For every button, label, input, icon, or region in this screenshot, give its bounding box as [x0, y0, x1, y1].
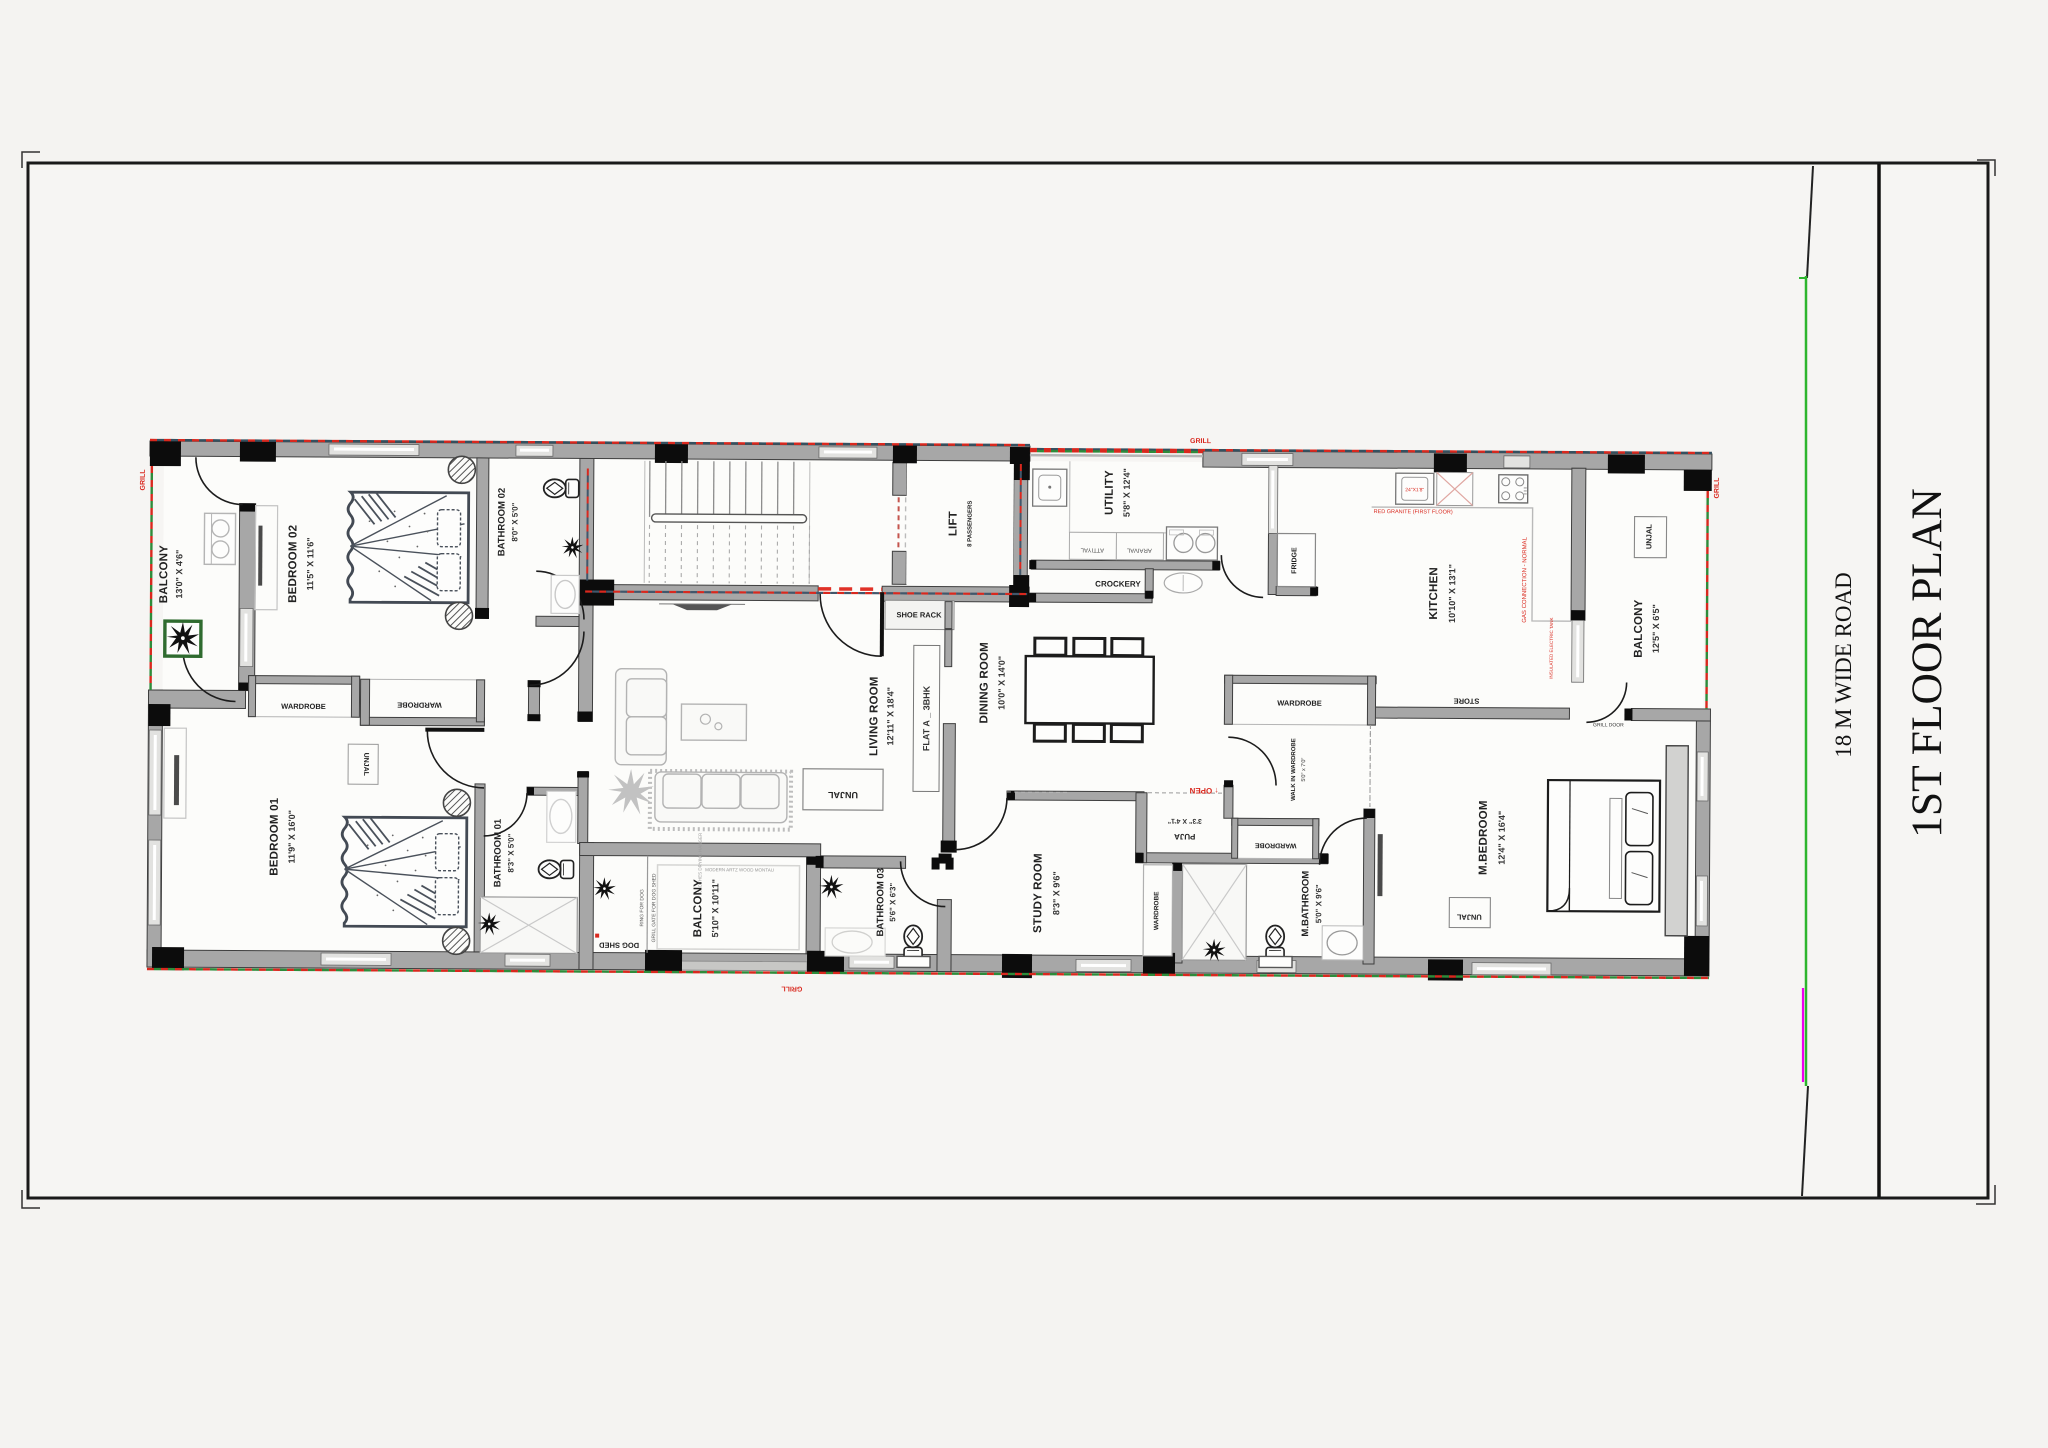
svg-text:8'3" X 5'0": 8'3" X 5'0": [507, 833, 516, 872]
svg-text:8'3" X 9'6": 8'3" X 9'6": [1051, 871, 1061, 915]
svg-text:RED GRANITE (FIRST FLOOR): RED GRANITE (FIRST FLOOR): [1374, 509, 1453, 515]
svg-text:WALK IN WARDROBE: WALK IN WARDROBE: [1291, 738, 1297, 801]
svg-text:8 PASSENGERS: 8 PASSENGERS: [967, 501, 973, 547]
svg-text:BALCONY: BALCONY: [158, 545, 170, 603]
svg-text:12'4" X 16'4": 12'4" X 16'4": [1497, 811, 1507, 865]
svg-text:11'9" X 16'0": 11'9" X 16'0": [287, 810, 297, 863]
svg-text:GRILL GATE FOR DOG SHED: GRILL GATE FOR DOG SHED: [651, 873, 657, 942]
svg-text:M.BEDROOM: M.BEDROOM: [1478, 800, 1490, 875]
svg-text:STORE: STORE: [1454, 697, 1480, 706]
svg-text:UNJAL: UNJAL: [827, 790, 858, 800]
svg-text:BALCONY: BALCONY: [692, 879, 704, 937]
svg-text:ARAIVAL: ARAIVAL: [1126, 547, 1152, 553]
svg-text:24"X1'8": 24"X1'8": [1405, 487, 1424, 493]
svg-text:GRILL DOOR: GRILL DOOR: [1593, 722, 1624, 728]
svg-text:KITCHEN: KITCHEN: [1428, 567, 1440, 620]
svg-text:WARDROBE: WARDROBE: [1153, 891, 1160, 930]
svg-text:3'3" X 4'1": 3'3" X 4'1": [1168, 817, 1202, 824]
svg-text:5'0" x 7'0": 5'0" x 7'0": [1301, 758, 1307, 782]
svg-text:5'0" X 9'6": 5'0" X 9'6": [1314, 884, 1323, 923]
svg-text:12'5" X 6'5": 12'5" X 6'5": [1651, 604, 1661, 653]
svg-text:18 M WIDE ROAD: 18 M WIDE ROAD: [1831, 572, 1856, 757]
svg-text:GRILL: GRILL: [781, 985, 803, 992]
svg-text:ATTIYAL: ATTIYAL: [1080, 546, 1104, 552]
svg-text:GRILL: GRILL: [140, 469, 147, 491]
svg-text:10'10" X 13'1": 10'10" X 13'1": [1447, 564, 1457, 623]
svg-text:5'10" X 10'11": 5'10" X 10'11": [710, 879, 720, 937]
svg-text:5'6" X 6'3": 5'6" X 6'3": [888, 883, 897, 922]
svg-text:RING FOR DOG: RING FOR DOG: [639, 889, 645, 926]
svg-text:CROCKERY: CROCKERY: [1095, 579, 1141, 588]
svg-text:GAS CONNECTION - NORMAL: GAS CONNECTION - NORMAL: [1522, 536, 1528, 622]
svg-text:GRILL: GRILL: [1714, 477, 1721, 499]
svg-text:STUDY ROOM: STUDY ROOM: [1032, 853, 1044, 933]
svg-text:DINING ROOM: DINING ROOM: [978, 642, 990, 723]
svg-text:UNJAL: UNJAL: [362, 753, 369, 777]
svg-text:UNJAL: UNJAL: [1456, 913, 1481, 922]
svg-text:UNJAL: UNJAL: [1644, 524, 1653, 549]
svg-text:INSULATED ELECTRIC TANK: INSULATED ELECTRIC TANK: [1549, 617, 1554, 678]
svg-text:BATHROOM 03: BATHROOM 03: [875, 868, 886, 937]
svg-text:WARDROBE: WARDROBE: [281, 702, 326, 711]
svg-text:8'0" X 5'0": 8'0" X 5'0": [510, 502, 519, 541]
svg-text:BEDROOM 01: BEDROOM 01: [268, 797, 280, 876]
svg-text:WARDROBE: WARDROBE: [1255, 841, 1297, 848]
svg-text:PUJA: PUJA: [1174, 832, 1196, 841]
svg-text:DOG SHED: DOG SHED: [598, 941, 639, 950]
svg-text:13'0" X 4'6": 13'0" X 4'6": [174, 550, 184, 599]
svg-text:BATHROOM 01: BATHROOM 01: [492, 818, 503, 887]
svg-text:GRILL: GRILL: [1190, 438, 1212, 445]
svg-text:5'8" X 12'4": 5'8" X 12'4": [1122, 468, 1132, 517]
svg-text:1ST FLOOR PLAN: 1ST FLOOR PLAN: [1903, 488, 1951, 838]
svg-text:WARDROBE: WARDROBE: [397, 700, 442, 709]
svg-text:WARDROBE: WARDROBE: [1277, 698, 1322, 707]
svg-text:11'5" X 11'6": 11'5" X 11'6": [305, 537, 315, 590]
svg-text:↑ OPEN: ↑ OPEN: [1189, 786, 1218, 795]
svg-text:BATHROOM 02: BATHROOM 02: [496, 488, 507, 557]
svg-text:MODERN ARTZ WOOD MONTAU: MODERN ARTZ WOOD MONTAU: [705, 867, 774, 872]
svg-text:LIFT: LIFT: [947, 511, 959, 536]
svg-text:UTILITY: UTILITY: [1104, 470, 1116, 515]
svg-text:LIVING ROOM: LIVING ROOM: [868, 676, 880, 756]
svg-text:FRIDGE: FRIDGE: [1291, 547, 1298, 574]
svg-text:SHOE RACK: SHOE RACK: [896, 610, 942, 619]
svg-text:10'0" X 14'0": 10'0" X 14'0": [996, 656, 1006, 710]
svg-text:12'11" X 18'4": 12'11" X 18'4": [885, 687, 895, 745]
svg-text:BEDROOM 02: BEDROOM 02: [287, 525, 299, 603]
svg-text:BALCONY: BALCONY: [1633, 599, 1645, 657]
svg-text:FLAT A _ 3BHK: FLAT A _ 3BHK: [921, 685, 931, 751]
svg-text:M.BATHROOM: M.BATHROOM: [1300, 871, 1311, 937]
